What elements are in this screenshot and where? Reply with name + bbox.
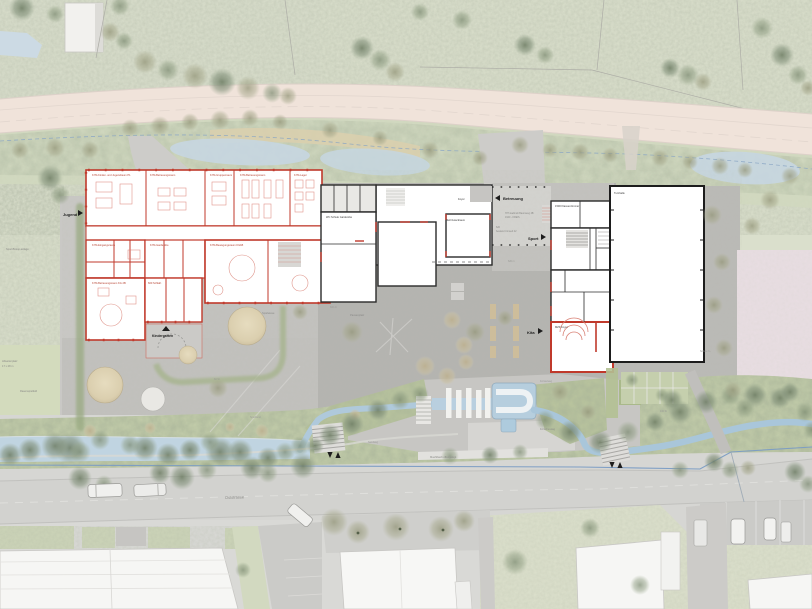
svg-text:KITA Betreuungsraum: KITA Betreuungsraum — [240, 173, 265, 177]
svg-text:60 St: 60 St — [214, 378, 220, 381]
svg-text:Spiel-Biotop-anlage: Spiel-Biotop-anlage — [6, 247, 29, 251]
svg-text:Foyer: Foyer — [458, 197, 465, 201]
svg-text:KITA Lager: KITA Lager — [294, 173, 307, 177]
svg-text:Turnhalle: Turnhalle — [614, 191, 625, 195]
svg-text:Oststrasse: Oststrasse — [225, 494, 245, 500]
svg-text:WC Schule Garderobe: WC Schule Garderobe — [326, 215, 353, 219]
svg-text:Mehrzweckraum: Mehrzweckraum — [446, 218, 465, 222]
svg-text:Sandweg: Sandweg — [368, 441, 379, 444]
svg-text:KITA Eingangsraum: KITA Eingangsraum — [92, 243, 115, 247]
svg-text:600 Schlafr.: 600 Schlafr. — [148, 281, 162, 285]
svg-text:1500 Klassenzimmer: 1500 Klassenzimmer — [555, 204, 579, 208]
svg-text:1940 - KREIS: 1940 - KREIS — [505, 216, 520, 219]
svg-text:Betreuung: Betreuung — [503, 196, 524, 201]
svg-text:Spielwiese: Spielwiese — [262, 311, 275, 315]
svg-text:KITA Garderobe: KITA Garderobe — [150, 243, 169, 247]
svg-text:KITA Kinder- und Jugendraum P1: KITA Kinder- und Jugendraum P1 — [92, 173, 131, 177]
svg-text:Jugend: Jugend — [63, 212, 78, 217]
svg-text:600 dt: 600 dt — [330, 306, 337, 309]
svg-text:Kindergarten: Kindergarten — [152, 334, 173, 338]
svg-text:620 m: 620 m — [508, 260, 515, 263]
svg-text:Schule 7+: Schule 7+ — [700, 350, 711, 353]
svg-text:Sport: Sport — [528, 236, 539, 241]
svg-text:KITA Gruppenraum: KITA Gruppenraum — [210, 173, 232, 177]
svg-text:KITA Betreuungsraum KG 2B: KITA Betreuungsraum KG 2B — [92, 281, 126, 285]
svg-text:KITA Bewegungsraum KG1B: KITA Bewegungsraum KG1B — [210, 243, 244, 247]
svg-text:bestand Umwelt 22: bestand Umwelt 22 — [496, 230, 517, 233]
svg-text:Allwetterplatz: Allwetterplatz — [2, 359, 18, 363]
svg-text:100 St: 100 St — [660, 410, 667, 413]
svg-text:MZF Foyer: MZF Foyer — [555, 325, 568, 329]
svg-text:Spielband: Spielband — [250, 416, 261, 419]
svg-text:17 x 28 m: 17 x 28 m — [2, 364, 13, 368]
svg-text:Forscherweg: Forscherweg — [540, 427, 556, 431]
svg-text:Muehlbach offengelegt: Muehlbach offengelegt — [430, 455, 456, 459]
svg-text:Pausenplatz: Pausenplatz — [350, 313, 365, 317]
svg-text:Forsterweg: Forsterweg — [540, 380, 553, 383]
svg-text:Kita: Kita — [527, 330, 535, 335]
svg-text:HIT stadtnah Baumweg 4B: HIT stadtnah Baumweg 4B — [505, 212, 534, 215]
svg-text:620: 620 — [496, 226, 501, 229]
svg-text:Rasenspielfeld: Rasenspielfeld — [20, 389, 38, 393]
svg-text:KITA Betreuungsraum: KITA Betreuungsraum — [150, 173, 175, 177]
